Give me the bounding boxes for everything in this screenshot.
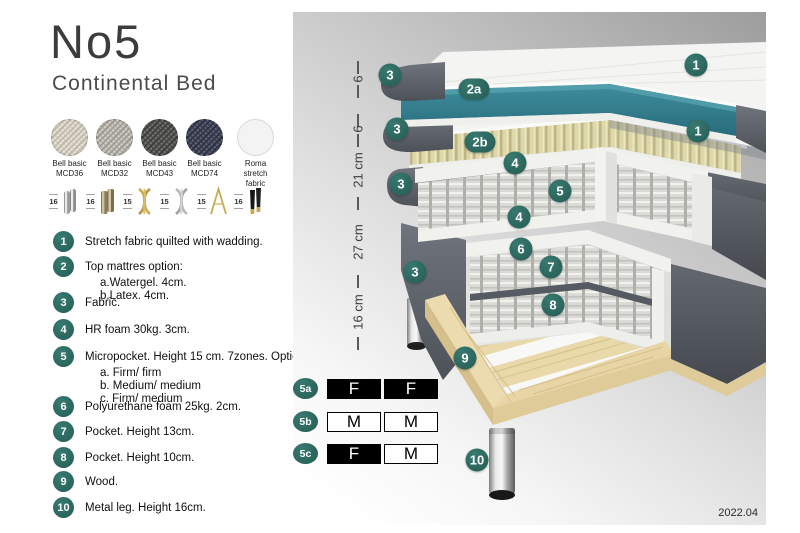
dimension-label: 21 cm [351,152,366,187]
firmness-option-badge: 5a [293,378,318,399]
ruler-tick [357,134,359,147]
firmness-cell: F [327,379,381,399]
callout-badge: 2a [459,79,490,100]
parts-list: 1 Stretch fabric quilted with wadding. 2… [0,0,293,533]
firmness-cell: F [384,379,438,399]
list-item: 1 Stretch fabric quilted with wadding. [53,231,263,252]
list-item: 9 Wood. [53,471,118,492]
callout-badge: 1 [687,120,710,143]
part-sub-option: a.Watergel. 4cm. [100,277,187,290]
callout-badge: 2b [465,132,496,153]
firmness-cell: M [384,444,438,464]
callout-badge: 7 [540,256,563,279]
firmness-row: 5a F F [293,378,438,399]
callout-badge: 4 [504,152,527,175]
callout-badge: 10 [466,449,489,472]
part-description: Micropocket. Height 15 cm. 7zones. Optio… [85,351,308,363]
part-description: Metal leg. Height 16cm. [85,502,206,514]
ruler-tick [357,61,359,74]
part-number-badge: 6 [53,396,74,417]
part-number-badge: 7 [53,421,74,442]
callout-badge: 3 [386,118,409,141]
part-number-badge: 4 [53,319,74,340]
ruler-tick [357,197,359,210]
info-panel: No5 Continental Bed Bell basicMCD36 Bell… [0,0,293,533]
firmness-cell: M [327,412,381,432]
dimension-label: 6 [351,75,366,82]
front-right-fabric-panel [671,264,766,396]
part-number-badge: 10 [53,497,74,518]
firmness-cell: M [384,412,438,432]
part-number-badge: 3 [53,292,74,313]
bed-cutaway-diagram: 6 6 21 cm 27 cm 16 cm 3 2a 1 3 2b 1 4 3 … [293,12,766,525]
callout-badge: 8 [542,294,565,317]
callout-badge: 4 [508,206,531,229]
part-description: Wood. [85,476,118,488]
part-description: Top mattres option: [85,261,183,273]
part-number-badge: 8 [53,447,74,468]
dimension-label: 16 cm [351,294,366,329]
callout-badge: 1 [685,54,708,77]
dimension-label: 27 cm [351,224,366,259]
list-item: 4 HR foam 30kg. 3cm. [53,319,190,340]
part-sub-option: a. Firm/ firm [100,367,308,380]
ruler-tick [357,85,359,98]
part-number-badge: 1 [53,231,74,252]
part-description: Fabric. [85,297,120,309]
list-item: 7 Pocket. Height 13cm. [53,421,194,442]
callout-badge: 3 [404,261,427,284]
part-number-badge: 2 [53,256,74,277]
firmness-option-badge: 5b [293,411,318,432]
version-label: 2022.04 [718,507,758,519]
part-description: Pocket. Height 13cm. [85,426,194,438]
firmness-row: 5c F M [293,443,438,464]
part-description: Stretch fabric quilted with wadding. [85,236,263,248]
firmness-row: 5b M M [293,411,438,432]
part-description: HR foam 30kg. 3cm. [85,324,190,336]
part-description: Pocket. Height 10cm. [85,452,194,464]
list-item: 10 Metal leg. Height 16cm. [53,497,206,518]
callout-badge: 9 [454,347,477,370]
list-item: 6 Polyurethane foam 25kg. 2cm. [53,396,241,417]
dimension-label: 6 [351,125,366,132]
part-description: Polyurethane foam 25kg. 2cm. [85,401,241,413]
ruler-tick [357,275,359,288]
ruler-tick [357,337,359,350]
callout-badge: 5 [549,180,572,203]
list-item: 3 Fabric. [53,292,120,313]
callout-badge: 6 [510,238,533,261]
callout-badge: 3 [390,173,413,196]
front-metal-leg [489,428,515,500]
list-item: 8 Pocket. Height 10cm. [53,447,194,468]
callout-badge: 3 [379,64,402,87]
part-number-badge: 9 [53,471,74,492]
part-sub-option: b. Medium/ medium [100,380,308,393]
firmness-option-badge: 5c [293,443,318,464]
part-number-badge: 5 [53,346,74,367]
firmness-cell: F [327,444,381,464]
